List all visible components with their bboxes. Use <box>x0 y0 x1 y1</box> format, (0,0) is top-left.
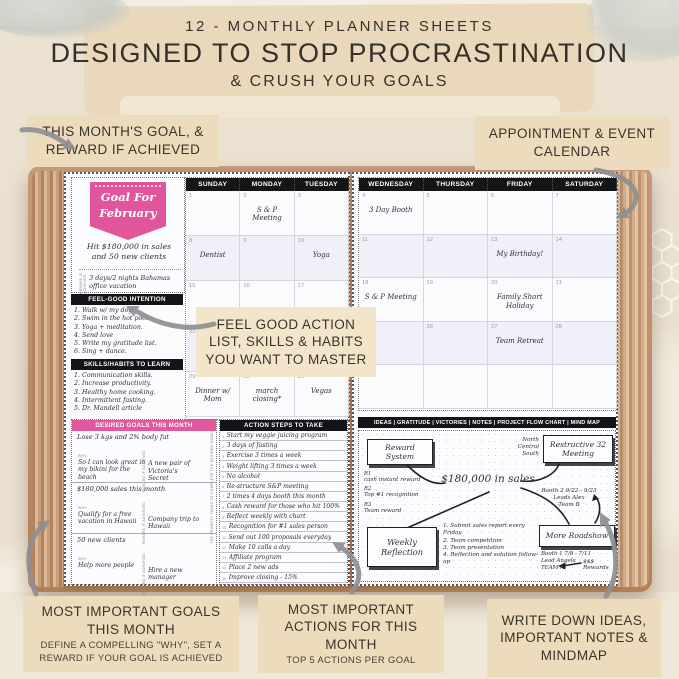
mindmap-box-weekly-reflection: Weekly Reflection <box>367 527 437 567</box>
day-header: MONDAY <box>240 178 294 191</box>
calendar-left-half: SUNDAYMONDAYTUESDAY 1 2 S & P Meeting 3 <box>185 177 350 420</box>
action-step-text: Affiliate program <box>229 554 282 562</box>
action-step-text: Make 10 calls a day <box>229 544 290 552</box>
calendar-day-cell: 28 <box>553 322 618 366</box>
month-reward-row: REWARD IF ACHIEVED 3 days/2 nights Baham… <box>79 269 181 294</box>
feel-good-intention-list: 1. Walk w/ my dog.2. Swim in the hot poo… <box>74 307 182 357</box>
vertical-side-note: TOP PRIORITY TASKS TO COMPLETE THE DESIR… <box>210 430 214 544</box>
calendar-day-cell <box>424 365 489 409</box>
desired-goals-list: Lose 3 kgs and 2% body fat WHY So I can … <box>72 431 216 584</box>
desired-goals-header: DESIRED GOALS THIS MONTH <box>72 420 216 431</box>
booth-note-line: Leads Alex <box>525 495 613 502</box>
month-goal-text: Hit $180,000 in sales and 50 new clients <box>80 242 178 262</box>
callout-most-important-actions: MOST IMPORTANT ACTIONS FOR THIS MONTH TO… <box>258 595 444 673</box>
callout-title: MOST IMPORTANT GOALS THIS MONTH <box>29 603 233 638</box>
region-line: South <box>507 451 539 458</box>
calendar-grid: 1 2 S & P Meeting 3 8 <box>186 191 349 417</box>
day-header: SUNDAY <box>186 178 240 191</box>
booth-note-line: Team B <box>525 502 613 509</box>
callout-feel-good-action-list: FEEL GOOD ACTION LIST, SKILLS & HABITS Y… <box>196 307 376 377</box>
title-line-2: DESIGNED TO STOP PROCRASTINATION <box>0 38 679 69</box>
planner-product-image: 12 - MONTHLY PLANNER SHEETS DESIGNED TO … <box>0 0 679 679</box>
reward-note: R3 Team reward <box>364 502 436 514</box>
action-steps-list: 1 Start my veggie juicing program 2 3 da… <box>220 431 347 583</box>
calendar-day-cell: 2 S & P Meeting <box>240 191 294 236</box>
day-number: 28 <box>556 324 562 330</box>
mindmap-box-more-roadshow: More Roadshow <box>539 525 615 547</box>
planner-left-page: Goal For February Hit $180,000 in sales … <box>64 172 350 586</box>
day-number: 4 <box>362 193 365 199</box>
calendar-grid: 4 3 Day Booth 5 6 7 <box>359 191 617 409</box>
goal-reward-text: Company trip to Hawaii <box>148 516 200 531</box>
day-number: 15 <box>189 283 195 289</box>
callout-text: THIS MONTH'S GOAL, & REWARD IF ACHIEVED <box>33 123 213 158</box>
calendar-day-cell: 19 <box>424 278 489 322</box>
action-step-text: Weight lifting 3 times a week <box>227 463 317 471</box>
day-entry: Family Short Holiday <box>488 293 552 310</box>
action-step-text: No alcohol <box>227 473 260 481</box>
day-entry: Dentist <box>186 251 239 259</box>
goal-block: Lose 3 kgs and 2% body fat WHY So I can … <box>72 431 216 482</box>
reward-if-achieved-label: REWARD IF ACHIEVED <box>79 272 87 294</box>
callout-most-important-goals: MOST IMPORTANT GOALS THIS MONTH DEFINE A… <box>23 596 239 672</box>
callout-text: FEEL GOOD ACTION LIST, SKILLS & HABITS Y… <box>202 316 370 369</box>
goal-reward-text: A new pair of Victoria's Secret <box>148 460 200 482</box>
calendar-day-cell: 20 Family Short Holiday <box>488 278 553 322</box>
action-step-row: 4 Weight lifting 3 times a week <box>220 461 347 471</box>
action-step-text: 2 times 4 days booth this month <box>227 493 326 501</box>
day-number: 8 <box>189 238 192 244</box>
goal-text: Lose 3 kgs and 2% body fat <box>77 434 212 442</box>
feel-good-item: 5. Write my gratitude list. <box>74 340 182 348</box>
action-step-number: 6 <box>222 485 224 491</box>
action-step-row: 3 Exercise 3 times a week <box>220 451 347 461</box>
action-step-text: Exercise 3 times a week <box>227 452 302 460</box>
notes-section-header: IDEAS | GRATITUDE | VICTORIES | NOTES | … <box>358 417 616 428</box>
action-step-text: Send out 100 proposals everyday <box>228 534 331 542</box>
action-step-row: 13 Affiliate program <box>220 553 347 563</box>
callout-this-months-goal: THIS MONTH'S GOAL, & REWARD IF ACHIEVED <box>27 115 219 167</box>
action-step-number: 7 <box>222 495 224 501</box>
action-step-row: 8 Cash reward for those who hit 100% <box>220 502 347 512</box>
action-step-number: 15 <box>222 577 226 583</box>
action-step-text: Cash reward for those who hit 100% <box>227 503 340 511</box>
day-header: WEDNESDAY <box>359 178 424 191</box>
action-steps-header: ACTION STEPS TO TAKE <box>220 420 347 431</box>
badge-line-1: Goal For <box>90 189 166 205</box>
day-entry: S & P Meeting <box>240 206 293 223</box>
day-number: 9 <box>243 238 246 244</box>
feel-good-item: 4. Send love <box>74 332 182 340</box>
action-step-row: 11 Send out 100 proposals everyday <box>220 532 347 542</box>
action-step-row: 7 2 times 4 days booth this month <box>220 492 347 502</box>
reward-if-achieved-label: REWARD IF ACHIEVED <box>142 553 146 595</box>
action-step-number: 3 <box>222 455 224 461</box>
action-step-text: Improve closing - 15% <box>229 574 298 582</box>
month-goal-section: Goal For February Hit $180,000 in sales … <box>71 177 185 293</box>
action-step-row: 1 Start my veggie juicing program <box>220 431 347 441</box>
page-stack-edge-right <box>617 171 649 587</box>
callout-appointment-calendar: APPOINTMENT & EVENT CALENDAR <box>475 116 669 170</box>
action-step-row: 9 Reflect weekly with chart <box>220 512 347 522</box>
day-entry: My Birthday! <box>488 250 552 258</box>
mindmap-booth2-note: Booth 2 9/22 - 9/23Leads AlexTeam B <box>525 488 613 510</box>
calendar-day-cell: 9 <box>240 236 294 281</box>
calendar-day-cell: 14 <box>553 235 618 279</box>
day-number: 16 <box>243 283 249 289</box>
weekly-list-item: 1. Submit sales report every Friday <box>443 523 543 538</box>
mindmap-weekly-list: 1. Submit sales report every Friday2. Te… <box>443 523 543 567</box>
day-entry: Dinner w/ Mom <box>186 387 239 404</box>
action-step-row: 14 Place 2 new ads <box>220 563 347 573</box>
why-label: WHY <box>78 557 87 561</box>
reward-note-text: Top #1 recognition <box>364 492 436 498</box>
title-banner: 12 - MONTHLY PLANNER SHEETS DESIGNED TO … <box>0 18 679 91</box>
day-number: 21 <box>556 280 562 286</box>
goal-reward-row: REWARD IF ACHIEVED Hire a new manager <box>142 553 200 595</box>
badge-line-2: February <box>90 205 166 221</box>
reward-note: R2 Top #1 recognition <box>364 486 436 498</box>
goal-why-text: Qualify for a free vacation in Hawaii <box>78 511 150 526</box>
action-steps-section: ACTION STEPS TO TAKE 1 Start my veggie j… <box>219 419 348 585</box>
reward-note-text: Team reward <box>364 508 436 514</box>
goal-block: 50 new clients WHY Help more people REWA… <box>72 533 216 584</box>
region-line: North <box>507 437 539 444</box>
calendar-day-cell: 30 march closing* <box>240 372 294 417</box>
day-header: FRIDAY <box>488 178 553 191</box>
day-number: 3 <box>298 193 301 199</box>
goal-text: $180,000 sales this month <box>77 486 212 494</box>
day-number: 11 <box>362 237 368 243</box>
day-number: 1 <box>189 193 192 199</box>
calendar-day-cell <box>553 365 618 409</box>
day-entry: 3 Day Booth <box>359 206 423 214</box>
calendar-day-headers: WEDNESDAYTHURSDAYFRIDAYSATURDAY <box>359 178 617 191</box>
day-header: SATURDAY <box>553 178 618 191</box>
action-step-number: 8 <box>222 506 224 512</box>
action-step-number: 9 <box>222 516 224 522</box>
day-entry: Vegas <box>295 387 348 395</box>
day-number: 27 <box>491 324 497 330</box>
title-line-3: & CRUSH YOUR GOALS <box>0 73 679 91</box>
action-step-number: 10 <box>222 526 226 532</box>
action-step-number: 12 <box>222 546 226 552</box>
mindmap-rewards-note: $$$ Rewards <box>583 559 615 571</box>
page-stack-edge-left <box>32 171 63 587</box>
action-step-row: 12 Make 10 calls a day <box>220 543 347 553</box>
day-number: 22 <box>189 329 195 335</box>
day-number: 26 <box>427 324 433 330</box>
day-number: 5 <box>427 193 430 199</box>
day-entry: march closing* <box>240 387 293 404</box>
action-step-text: 3 days of fasting <box>227 442 278 450</box>
action-step-number: 11 <box>222 536 226 542</box>
weekly-list-item: 4. Reflection and solution follow-up <box>443 552 543 567</box>
calendar-day-cell: 3 <box>295 191 349 236</box>
callout-write-down-ideas: WRITE DOWN IDEAS, IMPORTANT NOTES & MIND… <box>487 599 661 677</box>
why-label: WHY <box>78 454 87 458</box>
action-step-row: 15 Improve closing - 15% <box>220 573 347 583</box>
reward-note: R1 cash instant reward <box>364 471 436 483</box>
day-number: 14 <box>556 237 562 243</box>
mindmap-box-reward-system: Reward System <box>367 439 433 465</box>
calendar-day-cell: 12 <box>424 235 489 279</box>
day-number: 2 <box>243 193 246 199</box>
action-step-text: Recognition for #1 sales person <box>229 523 328 531</box>
calendar-day-headers: SUNDAYMONDAYTUESDAY <box>186 178 349 191</box>
feel-good-item: 6. Sing + dance. <box>74 348 182 356</box>
action-step-text: Start my veggie juicing program <box>227 432 328 440</box>
callout-title: MOST IMPORTANT ACTIONS FOR THIS MONTH <box>264 601 438 654</box>
day-entry: Team Retreat <box>488 337 552 345</box>
feel-good-item: 1. Walk w/ my dog. <box>74 307 182 315</box>
region-line: Central <box>507 444 539 451</box>
month-reward-text: 3 days/2 nights Bahamas office vacation <box>89 275 181 290</box>
calendar-day-cell: 13 My Birthday! <box>488 235 553 279</box>
callout-subtitle: TOP 5 ACTIONS PER GOAL <box>264 655 438 667</box>
mindmap-reward-notes: R1 cash instant reward R2 Top #1 recogni… <box>364 468 436 514</box>
calendar-day-cell: 5 <box>424 191 489 235</box>
title-line-1: 12 - MONTHLY PLANNER SHEETS <box>0 18 679 35</box>
planner-right-page: WEDNESDAYTHURSDAYFRIDAYSATURDAY 4 3 Day … <box>352 172 618 586</box>
calendar-day-cell: 1 <box>186 191 240 236</box>
desired-goals-section: DESIRED GOALS THIS MONTH Lose 3 kgs and … <box>71 419 217 585</box>
day-number: 18 <box>362 280 368 286</box>
mindmap-section: Reward System NorthCentralSouth Restruct… <box>358 430 616 582</box>
mindmap-central-goal: $180,000 in sales <box>435 473 541 485</box>
why-label: WHY <box>78 506 87 510</box>
action-step-number: 14 <box>222 566 226 572</box>
day-entry: Yoga <box>295 251 348 259</box>
calendar-day-cell: 8 Dentist <box>186 236 240 281</box>
reward-note-text: cash instant reward <box>364 477 436 483</box>
day-number: 19 <box>427 280 433 286</box>
action-step-row: 6 Re-structure S&P meeting <box>220 482 347 492</box>
calendar-day-cell: 27 Team Retreat <box>488 322 553 366</box>
calendar-day-cell: 31 Vegas <box>295 372 349 417</box>
action-step-row: 5 No alcohol <box>220 472 347 482</box>
feel-good-intention-header: FEEL-GOOD INTENTION <box>71 294 183 305</box>
action-step-row: 10 Recognition for #1 sales person <box>220 522 347 532</box>
day-number: 12 <box>427 237 433 243</box>
day-number: 29 <box>189 374 195 380</box>
calendar-day-cell: 11 <box>359 235 424 279</box>
calendar-day-cell: 26 <box>424 322 489 366</box>
weekly-list-item: 2. Team competition <box>443 538 543 545</box>
goal-reward-text: Hire a new manager <box>148 567 200 582</box>
booth-note-line: Booth 1 7/8 - 7/11 <box>541 551 599 558</box>
action-step-text: Re-structure S&P meeting <box>227 483 309 491</box>
action-step-number: 5 <box>222 475 224 481</box>
skills-habits-header: SKILLS/HABITS TO LEARN <box>71 359 183 370</box>
skills-habit-item: 1. Communication skills. <box>74 372 182 380</box>
callout-title: WRITE DOWN IDEAS, IMPORTANT NOTES & MIND… <box>493 612 655 665</box>
action-step-number: 2 <box>222 445 224 451</box>
skills-habits-list: 1. Communication skills.2. Increase prod… <box>74 372 182 413</box>
skills-habit-item: 2. Increase productivity. <box>74 380 182 388</box>
day-number: 7 <box>556 193 559 199</box>
action-step-number: 13 <box>222 556 226 562</box>
day-number: 6 <box>491 193 494 199</box>
calendar-day-cell: 29 Dinner w/ Mom <box>186 372 240 417</box>
day-header: TUESDAY <box>295 178 349 191</box>
callout-text: APPOINTMENT & EVENT CALENDAR <box>481 125 663 160</box>
day-number: 20 <box>491 280 497 286</box>
booth-note-line: Booth 2 9/22 - 9/23 <box>525 488 613 495</box>
action-step-number: 1 <box>222 435 224 441</box>
goal-text: 50 new clients <box>77 537 212 545</box>
day-header: THURSDAY <box>424 178 489 191</box>
goal-why-text: Help more people <box>78 562 150 569</box>
calendar-right-half: WEDNESDAYTHURSDAYFRIDAYSATURDAY 4 3 Day … <box>358 177 618 411</box>
day-number: 13 <box>491 237 497 243</box>
callout-subtitle: DEFINE A COMPELLING "WHY", SET A REWARD … <box>29 640 233 665</box>
calendar-day-cell: 10 Yoga <box>295 236 349 281</box>
skills-habit-item: 3. Healthy home cooking. <box>74 389 182 397</box>
feel-good-item: 2. Swim in the hot pool. <box>74 315 182 323</box>
mindmap-note-regions: NorthCentralSouth <box>507 437 539 458</box>
calendar-day-cell: 6 <box>488 191 553 235</box>
calendar-day-cell: 21 <box>553 278 618 322</box>
weekly-list-item: 3. Team presentation <box>443 545 543 552</box>
day-entry: S & P Meeting <box>359 293 423 301</box>
action-step-text: Reflect weekly with chart <box>227 513 306 521</box>
goal-why-text: So I can look great in my bikini for the… <box>78 459 150 481</box>
calendar-day-cell: 7 <box>553 191 618 235</box>
skills-habit-item: 5. Dr. Mandell article <box>74 405 182 413</box>
day-number: 10 <box>298 238 304 244</box>
goal-for-february-badge: Goal For February <box>90 182 166 240</box>
feel-good-item: 3. Yoga + meditation. <box>74 324 182 332</box>
goal-block: $180,000 sales this month WHY Qualify fo… <box>72 482 216 533</box>
action-step-row: 2 3 days of fasting <box>220 441 347 451</box>
mindmap-box-restructure-meeting: Restructive 32 Meeting <box>543 435 613 463</box>
stitch-decoration <box>95 185 161 187</box>
action-step-text: Place 2 new ads <box>229 564 279 572</box>
day-number: 17 <box>298 283 304 289</box>
action-step-number: 4 <box>222 465 224 471</box>
skills-habit-item: 4. Intermittent fasting. <box>74 397 182 405</box>
calendar-day-cell: 4 3 Day Booth <box>359 191 424 235</box>
calendar-day-cell <box>488 365 553 409</box>
